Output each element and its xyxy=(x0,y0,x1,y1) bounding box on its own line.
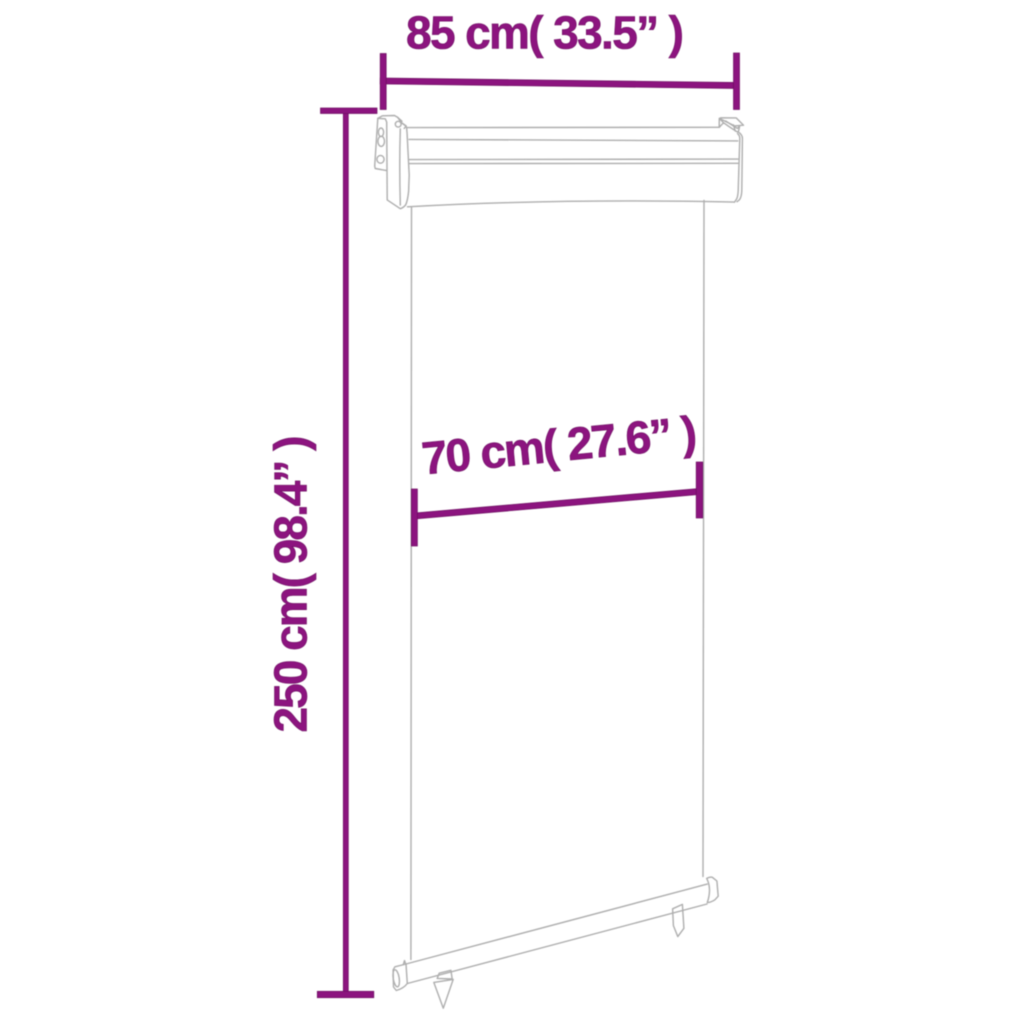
svg-text:85 cm( 33.5” ): 85 cm( 33.5” ) xyxy=(406,7,684,59)
svg-text:250 cm( 98.4” ): 250 cm( 98.4” ) xyxy=(265,436,317,733)
